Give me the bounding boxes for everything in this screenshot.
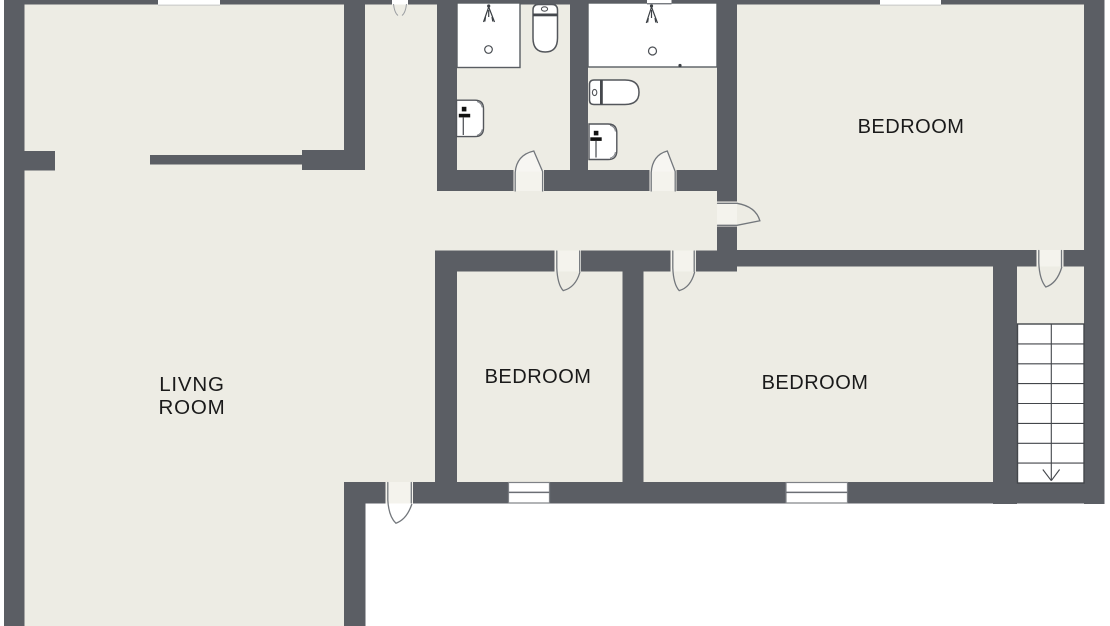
svg-text:ROOM: ROOM: [159, 396, 226, 419]
svg-text:BEDROOM: BEDROOM: [762, 372, 869, 394]
svg-text:BEDROOM: BEDROOM: [485, 366, 592, 388]
svg-text:LIVNG: LIVNG: [159, 373, 225, 396]
svg-text:BEDROOM: BEDROOM: [858, 116, 965, 138]
